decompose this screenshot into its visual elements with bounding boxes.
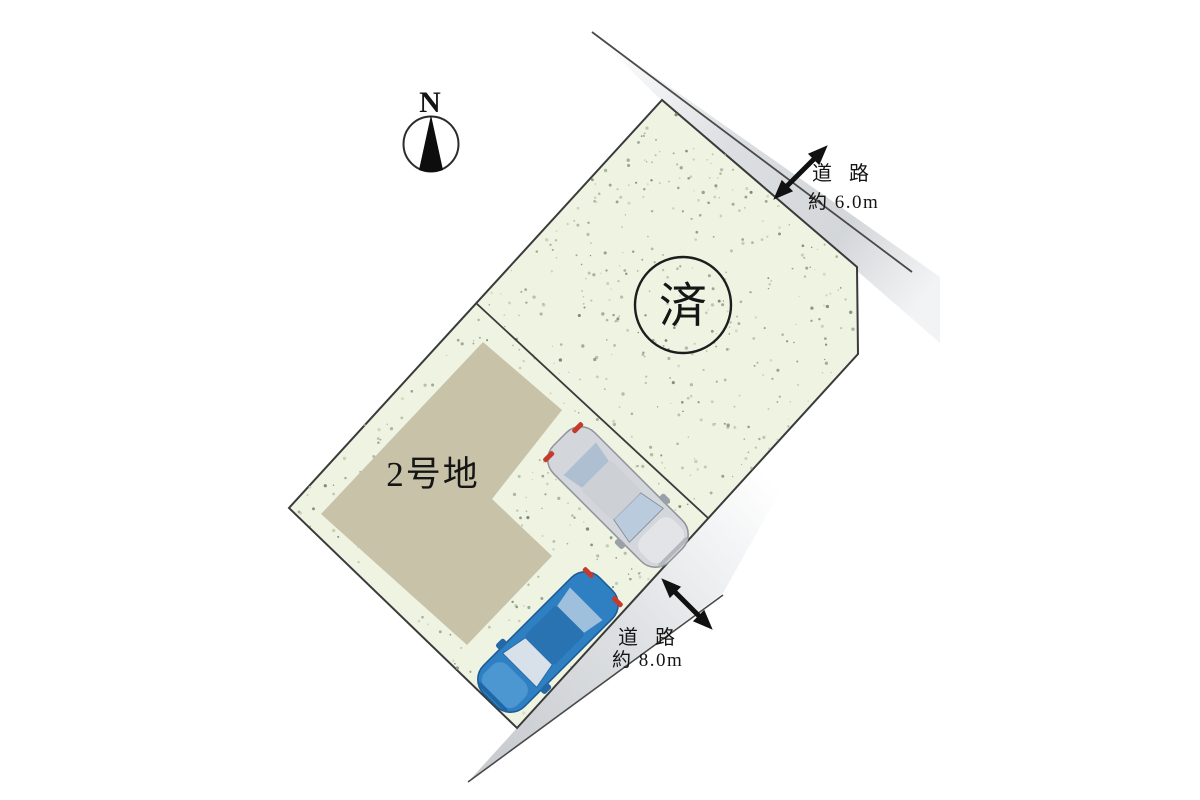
compass: N — [404, 86, 459, 172]
compass-needle-base — [419, 170, 443, 172]
road-se-label: 道路 — [618, 626, 692, 649]
lot-layout-diagram: 済 2号地 道路 約 6.0m 道路 約 8.0m — [0, 0, 1200, 800]
north-label: N — [419, 86, 441, 119]
lot2-label: 2号地 — [386, 455, 480, 494]
sold-label: 済 — [659, 280, 707, 333]
diagram-canvas: 済 2号地 道路 約 6.0m 道路 約 8.0m — [0, 0, 1200, 800]
road-se-width-label: 約 8.0m — [612, 649, 683, 671]
road-ne-label: 道路 — [812, 162, 886, 185]
road-ne-width-label: 約 6.0m — [808, 191, 879, 213]
